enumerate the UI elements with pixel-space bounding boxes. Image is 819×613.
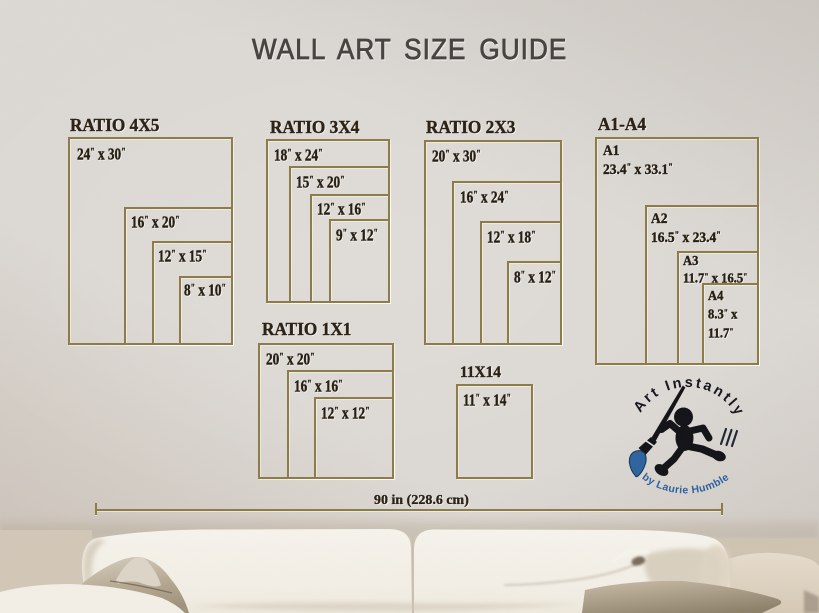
svg-text:by Laurie Humble: by Laurie Humble [640, 471, 732, 497]
